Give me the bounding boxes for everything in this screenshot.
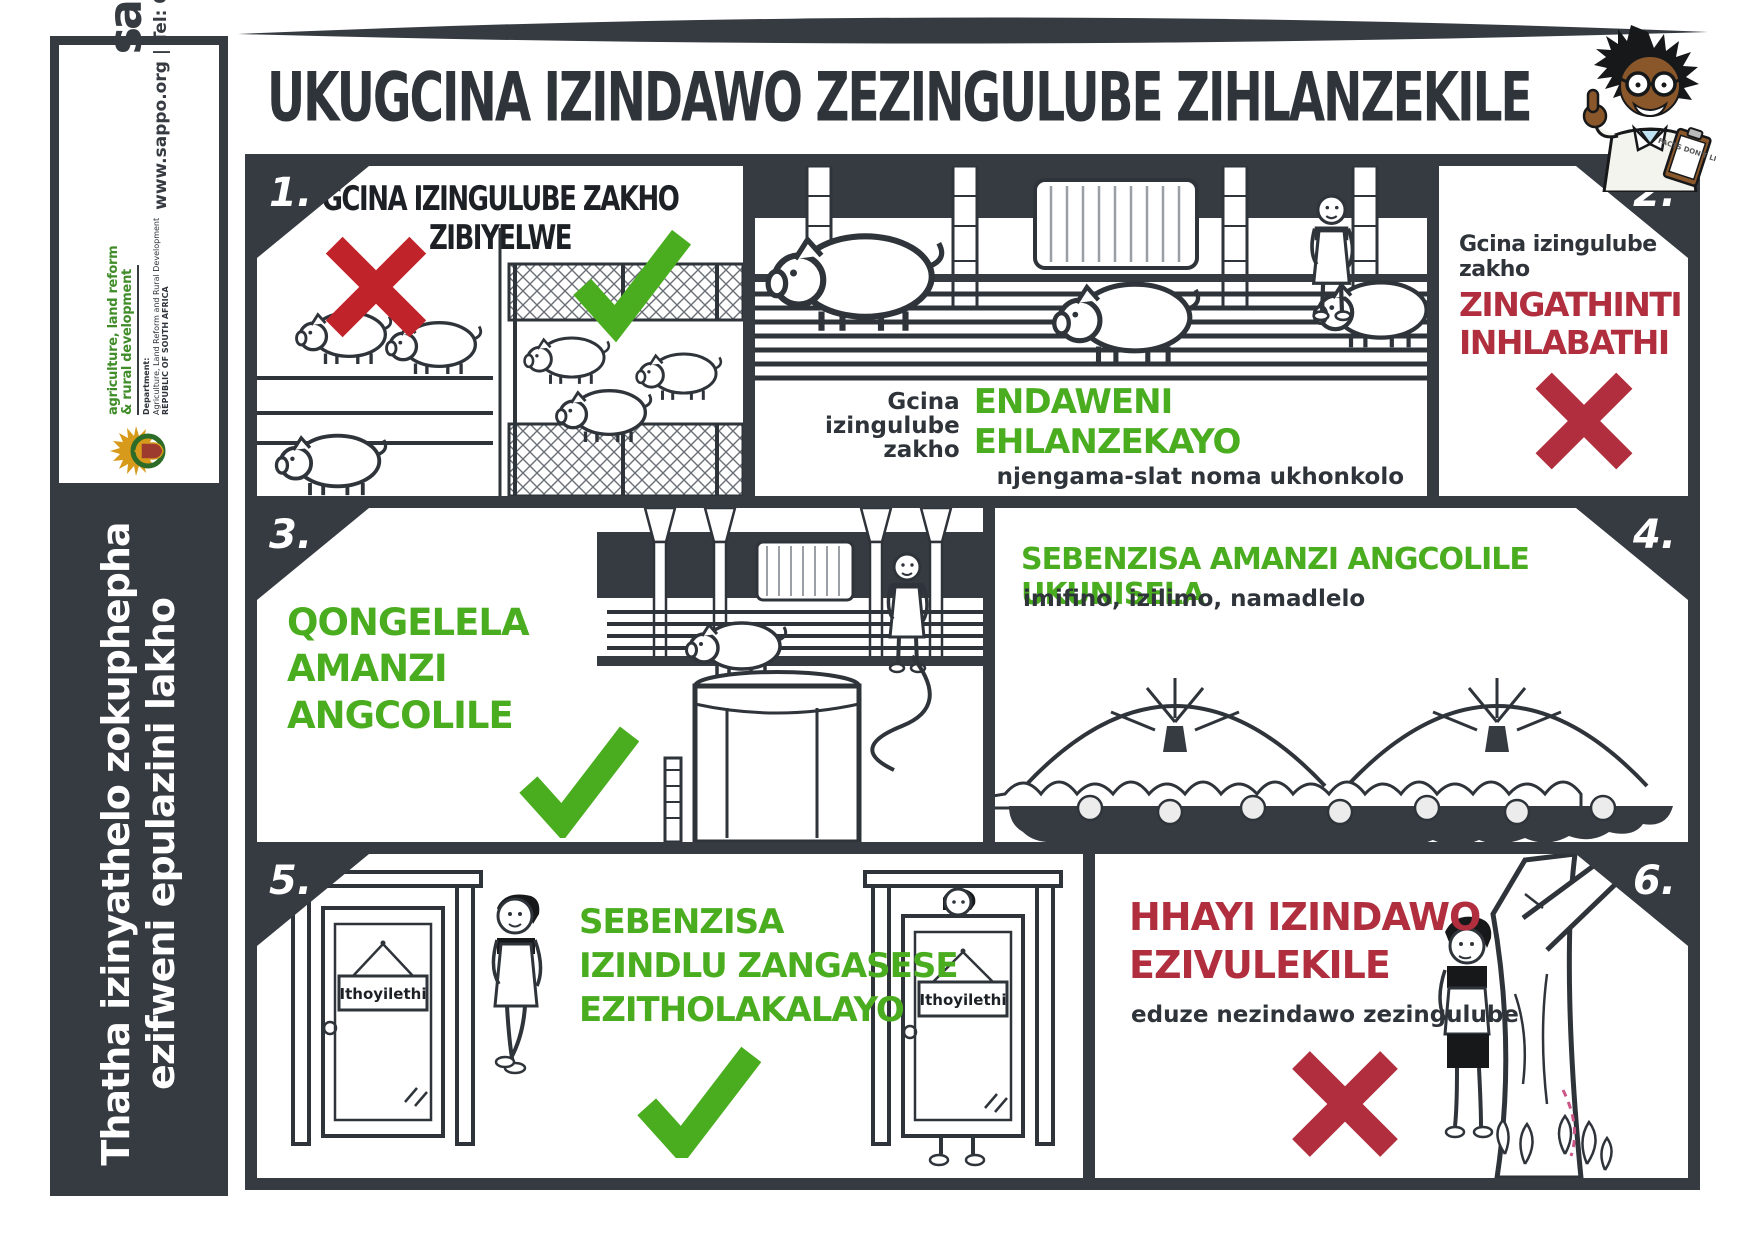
dept-heading-line1: agriculture, land reform <box>107 218 121 415</box>
panel-3-number: 3. <box>269 512 312 558</box>
panel-2-right-prefix: Gcina izingulube zakho <box>1459 232 1674 282</box>
panel-2-x-mark <box>1529 366 1639 476</box>
doctor-mascot: FACTS DON'T LIE <box>1578 24 1716 192</box>
panel-2-no-soil: 2. Gcina izingulube zakho ZINGATHINTI IN… <box>1439 166 1688 496</box>
poster-title: UKUGCINA IZINDAWO ZEZINGULUBE ZIHLANZEKI… <box>267 58 1531 138</box>
toilet-sign-left: Ithoyilethi <box>340 985 427 1003</box>
panel-2-clean-floor: Gcina izingulube zakho ENDAWENI EHLANZEK… <box>755 166 1427 496</box>
dept-name: Agriculture, Land Reform and Rural Devel… <box>152 218 161 415</box>
panel-1-keep-pigs-fenced: 1. GCINA IZINGULUBE ZAKHO ZIBIYELWE <box>257 166 743 496</box>
panel-2-red-line1: ZINGATHINTI <box>1459 286 1674 324</box>
panel-6-sub: eduze nezindawo zezingulube <box>1131 1002 1519 1028</box>
caption-prefix-line1: Gcina izingulube <box>755 390 960 438</box>
tagline-line1: Thatha izinyathelo zokuphepha <box>94 499 139 1189</box>
panel-4-sub: imifino, izilimo, namadlelo <box>1023 586 1365 612</box>
dept-divider <box>137 265 139 415</box>
sidebar-tagline-strip: Thatha izinyathelo zokuphepha ezifweni e… <box>50 492 228 1196</box>
panel-3-green-text: QONGELELA AMANZI ANGCOLILE <box>287 600 529 739</box>
dept-country: REPUBLIC OF SOUTH AFRICA <box>161 218 171 415</box>
sidebar-logo-box: agriculture, land reform & rural develop… <box>50 36 228 492</box>
panel-5-line3: EZITHOLAKALAYO <box>579 988 958 1032</box>
panel-board: 1. GCINA IZINGULUBE ZAKHO ZIBIYELWE <box>245 154 1700 1190</box>
panel-6-red-text: HHAYI IZINDAWO EZIVULEKILE <box>1129 894 1480 989</box>
caption-green: ENDAWENI EHLANZEKAYO <box>974 382 1427 462</box>
panel-4-illustration <box>995 626 1688 842</box>
panel-1-number: 1. <box>269 170 312 216</box>
panel-6-x-mark <box>1285 1044 1405 1164</box>
coat-of-arms-logo <box>108 423 170 479</box>
dept-heading-line2: & rural development <box>121 218 135 415</box>
panel-3-collect-dirty-water: 3. <box>257 508 983 842</box>
title-band: UKUGCINA IZINDAWO ZEZINGULUBE ZIHLANZEKI… <box>245 44 1700 154</box>
panel-6-number: 6. <box>1633 858 1676 904</box>
panel-2-red-line2: INHLABATHI <box>1459 324 1674 362</box>
panel-4-irrigate: 4. SEBENZISA AMANZI ANGCOLILE UKUNISELA … <box>995 508 1688 842</box>
panel-5-number: 5. <box>269 858 312 904</box>
panel-3-line2: AMANZI <box>287 646 529 692</box>
panel-5-line1: SEBENZISA <box>579 900 958 944</box>
panel-6-red-line1: HHAYI IZINDAWO <box>1129 894 1480 942</box>
caption-sub: njengama-slat noma ukhonkolo <box>974 464 1427 490</box>
sappo-contact: www.sappo.org | Tel: 012 100 3035 <box>151 0 171 210</box>
poster-page: agriculture, land reform & rural develop… <box>0 0 1755 1242</box>
panel-2-illustration <box>755 166 1427 384</box>
panel-1-illustration <box>257 228 743 496</box>
panel-5-line2: IZINDLU ZANGASESE <box>579 944 958 988</box>
panel-6-no-open-areas: 6. <box>1095 854 1688 1178</box>
sappo-wordmark: sappo <box>107 0 144 54</box>
panel-5-use-toilets: 5. Ithoyilethi <box>257 854 1083 1178</box>
tagline-line2: ezifweni epulazini lakho <box>139 499 184 1189</box>
sidebar-tagline: Thatha izinyathelo zokuphepha ezifweni e… <box>59 499 219 1189</box>
panel-5-green-text: SEBENZISA IZINDLU ZANGASESE EZITHOLAKALA… <box>579 900 958 1033</box>
panel-3-line1: QONGELELA <box>287 600 529 646</box>
caption-prefix: Gcina izingulube zakho <box>755 382 960 462</box>
dept-label: Department: <box>142 218 152 415</box>
panel-2-caption: Gcina izingulube zakho ENDAWENI EHLANZEK… <box>755 382 1427 490</box>
panel-5-check-mark <box>637 1042 761 1158</box>
caption-prefix-line2: zakho <box>755 438 960 462</box>
sappo-logo-block: sappo www.sappo.org | Tel: 012 100 3035 <box>107 0 172 210</box>
panel-6-red-line2: EZIVULEKILE <box>1129 942 1480 990</box>
panel-4-number: 4. <box>1633 512 1676 558</box>
panel-3-line3: ANGCOLILE <box>287 693 529 739</box>
panel-3-check-mark <box>519 718 639 838</box>
department-block: agriculture, land reform & rural develop… <box>107 218 171 415</box>
